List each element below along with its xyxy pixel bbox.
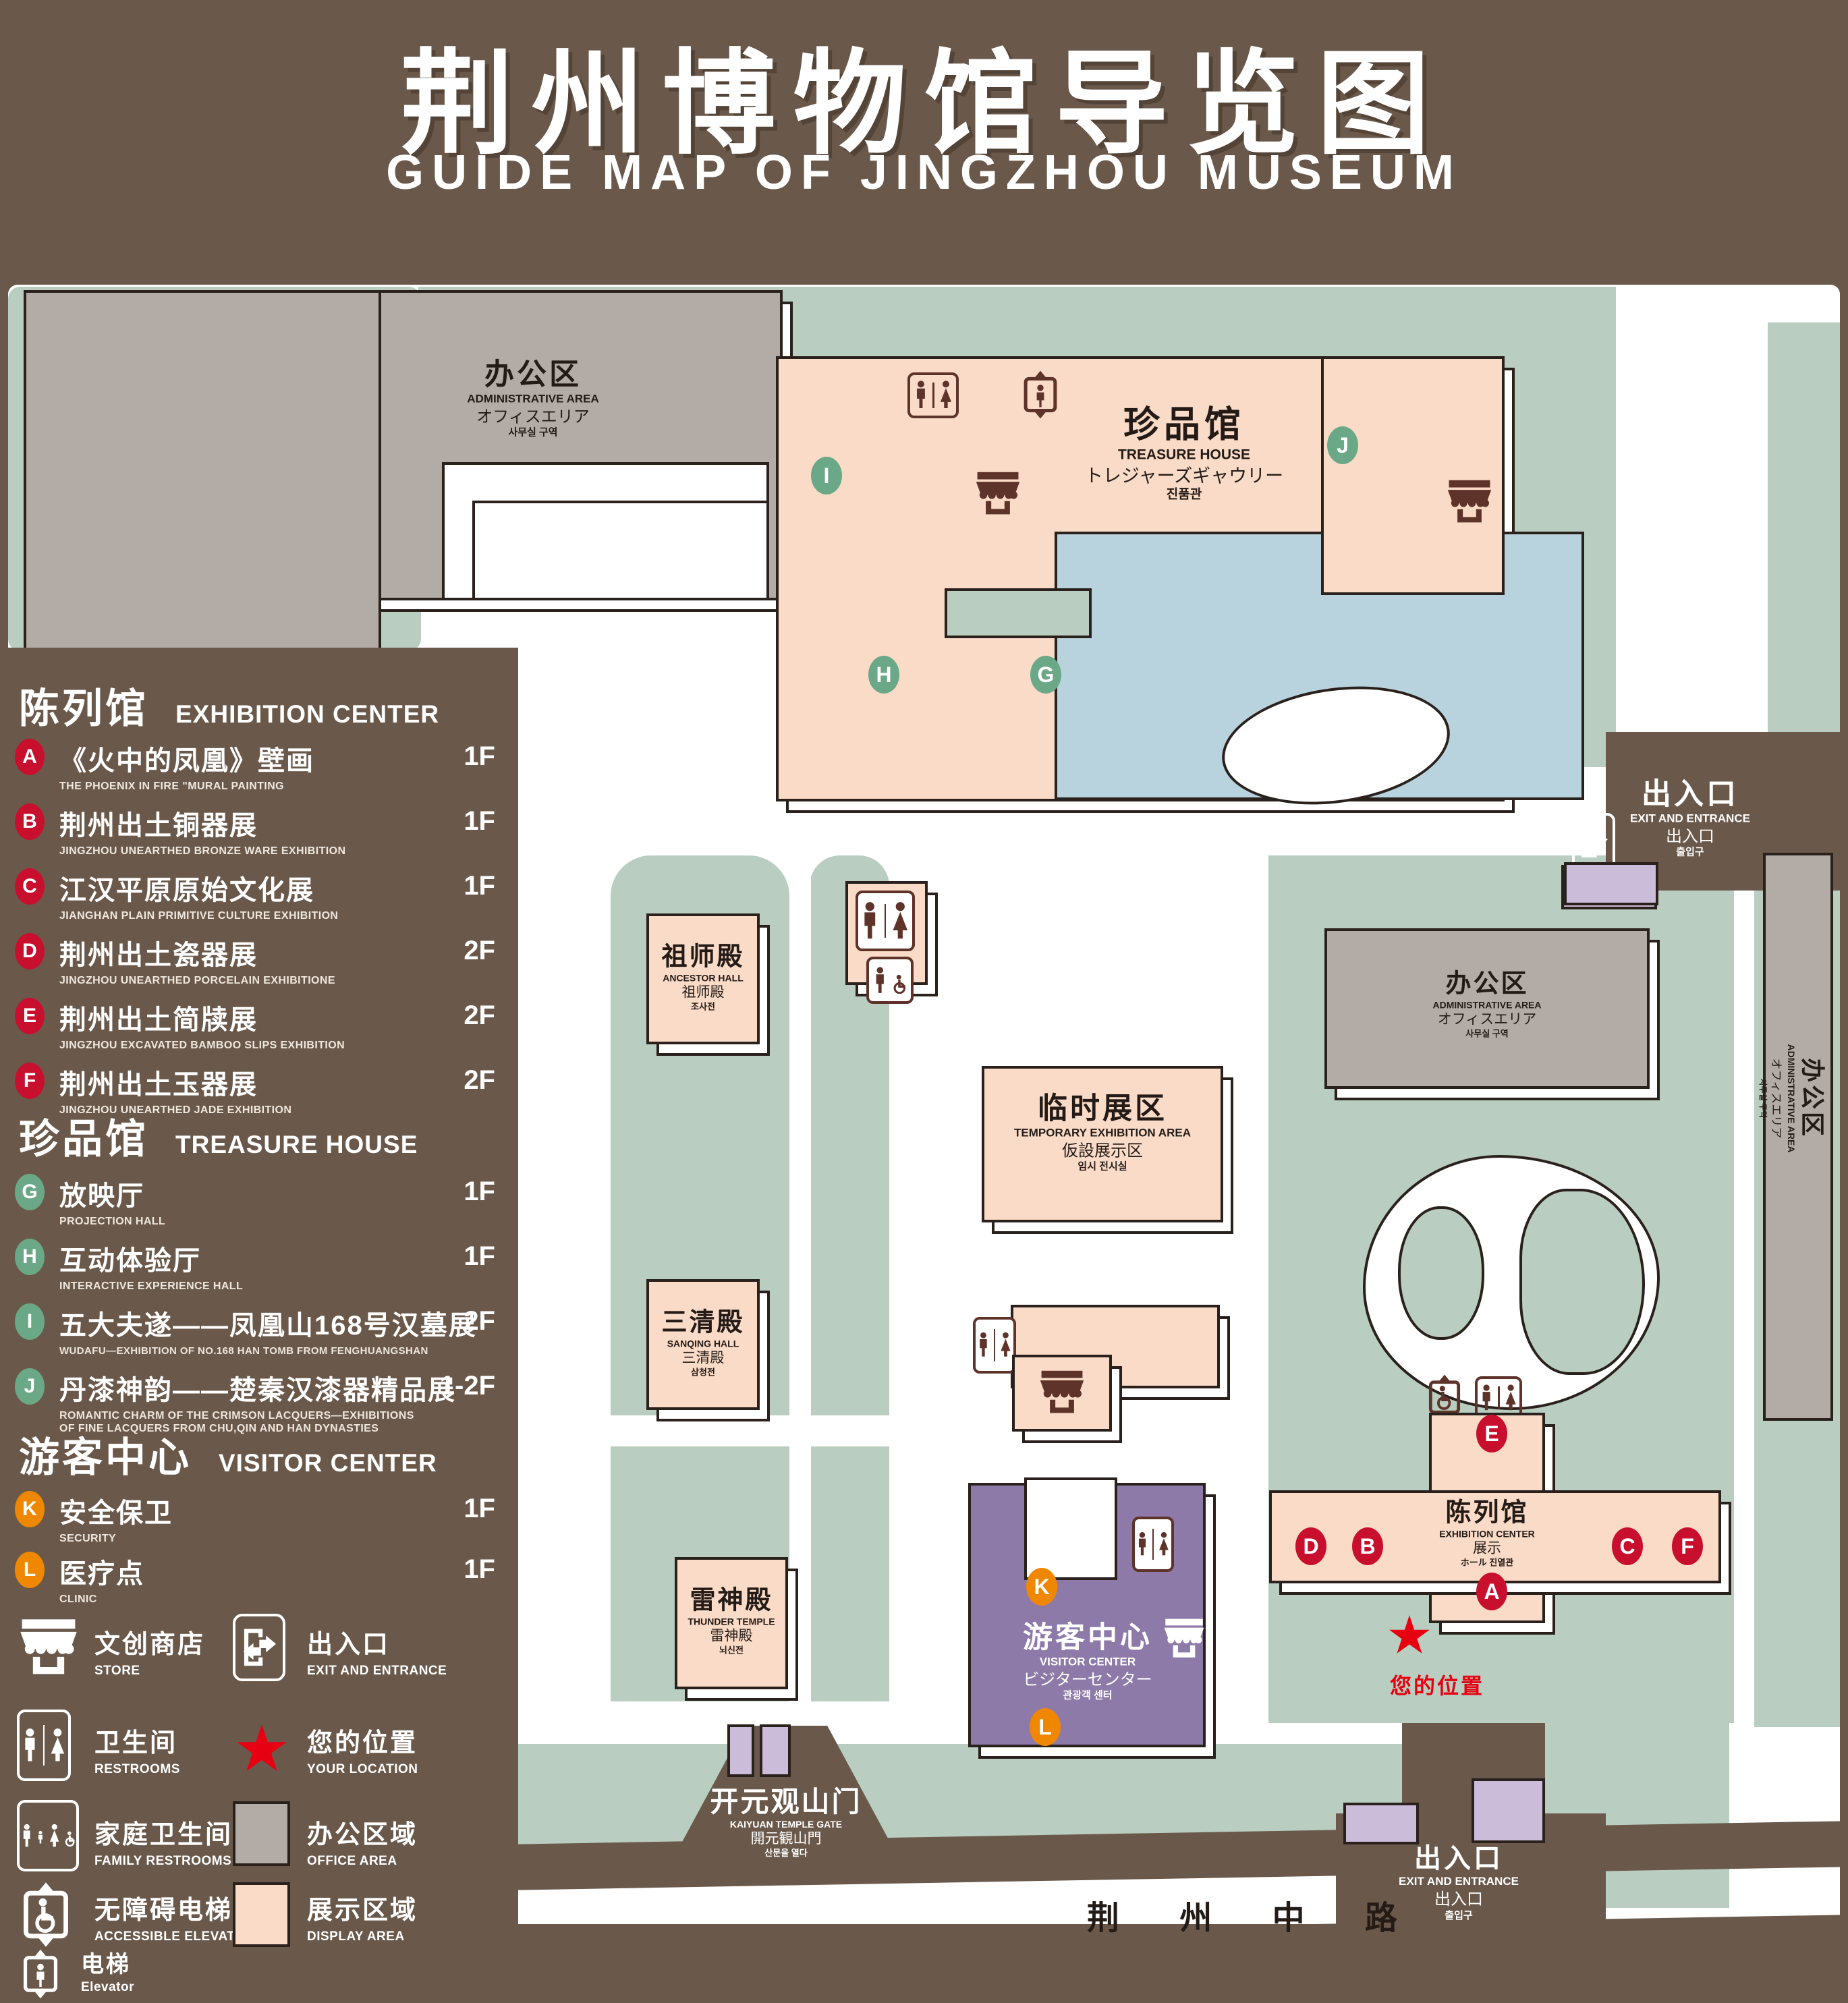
legend-item-a: A 1F 《火中的凤凰》壁画 THE PHOENIX IN FIRE "MURA… xyxy=(15,739,495,793)
legend-symbol-location: 您的位置 YOUR LOCATION xyxy=(307,1722,418,1777)
label-zh: 《火中的凤凰》壁画 xyxy=(59,739,495,778)
legend-item-b: B 1F 荆州出土铜器展 JINGZHOU UNEARTHED BRONZE W… xyxy=(15,803,495,857)
building-admin-northwest-wing xyxy=(24,290,381,681)
exit-entrance-label-right: 出入口 EXIT AND ENTRANCE 出入口 출입구 xyxy=(1630,777,1750,859)
map-marker-a: A xyxy=(1476,1573,1507,1610)
label-jp: 雷神殿 xyxy=(688,1629,775,1645)
divider xyxy=(43,1725,45,1766)
label-zh: 出入口 xyxy=(307,1623,447,1660)
label-zh: 祖师殿 xyxy=(661,942,744,972)
label-en: EXIT AND ENTRANCE xyxy=(307,1664,447,1678)
floor: 2F xyxy=(464,936,495,966)
store-icon xyxy=(17,1618,80,1677)
label-en: KAIYUAN TEMPLE GATE xyxy=(710,1818,862,1830)
label-zh: 三清殿 xyxy=(661,1307,744,1338)
temporary-exhibition-label: 临时展区 TEMPORARY EXHIBITION AREA 仮設展示区 임시 … xyxy=(1014,1092,1191,1173)
label-en: FAMILY RESTROOMS xyxy=(94,1854,233,1869)
legend-item-d: D 2F 荆州出土瓷器展 JINGZHOU UNEARTHED PORCELAI… xyxy=(15,933,495,987)
office-area-swatch xyxy=(233,1801,290,1866)
label-jp: オフィスエリア xyxy=(467,407,599,426)
pond-green-terrace xyxy=(945,588,1092,638)
label-zh: 荆州出土玉器展 xyxy=(59,1063,495,1102)
store-icon xyxy=(1162,1618,1206,1660)
legend-section-treasure-house: 珍品馆 TREASURE HOUSE xyxy=(19,1106,418,1165)
label-kr: 뇌신전 xyxy=(688,1645,775,1655)
label-zh: 家庭卫生间 xyxy=(94,1813,233,1851)
label-en: EXIT AND ENTRANCE xyxy=(1630,812,1750,825)
label-en: CLINIC xyxy=(59,1593,495,1606)
elevator-icon xyxy=(1020,370,1061,420)
label-jp: トレジャーズギャウリー xyxy=(1085,466,1283,488)
path-between-columns xyxy=(789,855,811,1701)
label-en: THE PHOENIX IN FIRE "MURAL PAINTING xyxy=(59,781,495,793)
label-en: STORE xyxy=(94,1664,205,1678)
exhibition-center-label: 陈列馆 EXHIBITION CENTER 展示 ホール 진열관 xyxy=(1439,1498,1535,1567)
label-zh: 游客中心 xyxy=(1023,1620,1152,1656)
label-en: JIANGHAN PLAIN PRIMITIVE CULTURE EXHIBIT… xyxy=(59,910,495,922)
thunder-temple-label: 雷神殿 THUNDER TEMPLE 雷神殿 뇌신전 xyxy=(688,1585,775,1655)
path-cross-columns xyxy=(611,1415,894,1446)
label-zh: 您的位置 xyxy=(307,1722,418,1759)
label-zh: 珍品馆 xyxy=(1085,404,1283,447)
label-jp: オフィスエリア xyxy=(1769,920,1786,1277)
label-jp: オフィスエリア xyxy=(1433,1012,1542,1029)
floor: 2F xyxy=(464,1000,495,1031)
visitor-center-label: 游客中心 VISITOR CENTER ビジターセンター 관광객 센터 xyxy=(1023,1620,1152,1702)
map-marker-h: H xyxy=(868,656,899,694)
label-kr: 진품관 xyxy=(1085,488,1283,503)
label-zh: 办公区 xyxy=(1797,920,1832,1277)
legend-symbol-accessible-elevator: 无障碍电梯 ACCESSIBLE ELEVATOR xyxy=(94,1889,255,1944)
label-en: SANQING HALL xyxy=(661,1338,744,1349)
treasure-house-label: 珍品馆 TREASURE HOUSE トレジャーズギャウリー 진품관 xyxy=(1085,404,1283,503)
section-title-en: EXHIBITION CENTER xyxy=(175,700,439,729)
admin-middle-label: 办公区 ADMINISTRATIVE AREA オフィスエリア 사무실 구역 xyxy=(1433,969,1542,1038)
label-en: VISITOR CENTER xyxy=(1023,1655,1152,1668)
restrooms-icon xyxy=(907,372,959,418)
admin-courtyard-inner xyxy=(472,501,769,600)
legend-symbol-restrooms: 卫生间 RESTROOMS xyxy=(94,1722,180,1777)
label-en: TEMPORARY EXHIBITION AREA xyxy=(1014,1126,1191,1139)
display-area-swatch xyxy=(233,1882,290,1947)
label-en: ADMINISTRATIVE AREA xyxy=(467,392,599,405)
divider xyxy=(1498,1386,1500,1410)
label-en: JINGZHOU UNEARTHED PORCELAIN EXHIBITIONE xyxy=(59,975,495,987)
section-title-zh: 陈列馆 xyxy=(19,676,148,735)
garden-islet-west xyxy=(1398,1206,1484,1340)
label-kr: 임시 전시실 xyxy=(1014,1161,1191,1173)
label-jp: 祖师殿 xyxy=(661,985,744,1002)
label-zh: 陈列馆 xyxy=(1439,1498,1535,1528)
floor: 1F xyxy=(464,806,495,837)
label-en: ACCESSIBLE ELEVATOR xyxy=(94,1929,255,1944)
label-en: JINGZHOU UNEARTHED BRONZE WARE EXHIBITIO… xyxy=(59,845,495,857)
label-en: INTERACTIVE EXPERIENCE HALL xyxy=(59,1280,495,1293)
elevator-icon xyxy=(19,1948,62,2000)
legend-item-c: C 1F 江汉平原原始文化展 JIANGHAN PLAIN PRIMITIVE … xyxy=(15,868,495,922)
section-title-en: TREASURE HOUSE xyxy=(175,1131,418,1159)
label-en: ROMANTIC CHARM OF THE CRIMSON LACQUERS—E… xyxy=(59,1410,495,1422)
floor: 1F xyxy=(464,1494,495,1524)
label-zh: 江汉平原原始文化展 xyxy=(59,868,495,907)
map-marker-c: C xyxy=(1612,1527,1643,1565)
label-en: EXIT AND ENTRANCE xyxy=(1399,1875,1519,1888)
label-en: SECURITY xyxy=(59,1533,495,1545)
label-kr: 관광객 센터 xyxy=(1023,1690,1152,1702)
label-zh: 办公区域 xyxy=(307,1813,418,1851)
restrooms-icon xyxy=(973,1317,1016,1374)
page-subtitle: GUIDE MAP OF JINGZHOU MUSEUM xyxy=(0,145,1848,200)
label-jp: 展示 xyxy=(1439,1541,1535,1558)
store-icon xyxy=(1038,1370,1086,1415)
label-zh: 出入口 xyxy=(1399,1843,1519,1875)
badge-c: C xyxy=(15,868,45,905)
legend-symbol-elevator: 电梯 Elevator xyxy=(81,1946,134,1995)
badge-l: L xyxy=(15,1552,45,1588)
label-kr: 출입구 xyxy=(1630,847,1750,859)
badge-i: I xyxy=(15,1303,45,1340)
label-kr: 삼청전 xyxy=(661,1367,744,1377)
legend-item-g: G 1F 放映厅 PROJECTION HALL xyxy=(15,1174,495,1228)
exit-entrance-icon xyxy=(233,1614,285,1681)
label-en: ANCESTOR HALL xyxy=(661,972,744,984)
label-zh: 办公区 xyxy=(467,358,599,393)
label-zh: 电梯 xyxy=(81,1946,134,1979)
badge-k: K xyxy=(15,1491,45,1527)
label-en: TREASURE HOUSE xyxy=(1085,447,1283,463)
label-zh: 五大夫遂——凤凰山168号汉墓展 xyxy=(59,1303,495,1343)
label-jp: ビジターセンター xyxy=(1023,1670,1152,1689)
divider xyxy=(1152,1529,1154,1560)
map-marker-g: G xyxy=(1030,656,1061,694)
label-jp: 仮設展示区 xyxy=(1014,1141,1191,1160)
floor: 2F xyxy=(464,1306,495,1336)
map-marker-l: L xyxy=(1030,1708,1061,1746)
label-en: YOUR LOCATION xyxy=(307,1762,418,1777)
legend-symbol-office-area: 办公区域 OFFICE AREA xyxy=(307,1813,418,1869)
label-kr: 사무실 구역 xyxy=(1433,1028,1542,1038)
floor: 1F xyxy=(464,741,495,772)
label-zh: 开元观山门 xyxy=(710,1785,862,1819)
gatehouse-bottom-west xyxy=(1343,1803,1419,1844)
legend-item-e: E 2F 荆州出土简牍展 JINGZHOU EXCAVATED BAMBOO S… xyxy=(15,998,495,1052)
road-label: 荆 州 中 路 xyxy=(1087,1891,1423,1938)
label-kr: 조사전 xyxy=(661,1001,744,1011)
family-restroom-icon xyxy=(17,1800,79,1871)
gate-pillar-east xyxy=(760,1724,791,1777)
floor: 1F xyxy=(464,1241,495,1272)
green-area-top-right xyxy=(1768,322,1840,761)
label-kr: 사무실 구역 xyxy=(467,427,599,439)
label-en: ADMINISTRATIVE AREA xyxy=(1433,999,1542,1011)
your-location-star: ★ xyxy=(1386,1605,1433,1666)
badge-e: E xyxy=(15,998,45,1034)
your-location-label: 您的位置 xyxy=(1390,1669,1484,1700)
map-marker-e: E xyxy=(1476,1415,1507,1452)
label-zh: 丹漆神韵——楚秦汉漆器精品展 xyxy=(59,1368,495,1407)
badge-d: D xyxy=(15,933,45,969)
family-restroom-icon xyxy=(866,957,914,1004)
sanqing-hall-label: 三清殿 SANQING HALL 三清殿 삼청전 xyxy=(661,1307,744,1377)
map-marker-i: I xyxy=(811,457,842,495)
label-zh: 荆州出土铜器展 xyxy=(59,803,495,843)
kaiyuan-gate-label: 开元观山门 KAIYUAN TEMPLE GATE 開元観山門 산문을 열다 xyxy=(710,1785,862,1858)
visitor-center-notch xyxy=(1024,1477,1117,1580)
label-kr: 산문을 열다 xyxy=(710,1848,862,1858)
label-jp: 開元観山門 xyxy=(710,1831,862,1848)
section-title-en: VISITOR CENTER xyxy=(219,1449,437,1477)
gatehouse-bottom-east xyxy=(1472,1778,1545,1843)
label-jp2: ホール 진열관 xyxy=(1439,1557,1535,1567)
legend-item-h: H 1F 互动体验厅 INTERACTIVE EXPERIENCE HALL xyxy=(15,1239,495,1293)
label-en: WUDAFU—EXHIBITION OF NO.168 HAN TOMB FRO… xyxy=(59,1345,495,1357)
label-zh: 文创商店 xyxy=(94,1623,205,1660)
label-zh: 展示区域 xyxy=(307,1889,418,1926)
map-marker-d: D xyxy=(1295,1527,1326,1565)
label-zh2: 出入口 xyxy=(1630,827,1750,846)
badge-b: B xyxy=(15,803,45,840)
floor: 1F xyxy=(464,1554,495,1585)
label-en: ADMINISTRATIVE AREA xyxy=(1786,920,1797,1277)
floor: 1F xyxy=(464,1177,495,1207)
label-en: JINGZHOU EXCAVATED BAMBOO SLIPS EXHIBITI… xyxy=(59,1040,495,1052)
building-treasure-house-east-wing xyxy=(1321,356,1505,595)
map-marker-b: B xyxy=(1352,1527,1383,1565)
label-en: EXHIBITION CENTER xyxy=(1439,1528,1535,1540)
legend-section-exhibition-center: 陈列馆 EXHIBITION CENTER xyxy=(19,676,439,735)
garden-islet-east xyxy=(1519,1189,1645,1375)
legend-symbol-family-restrooms: 家庭卫生间 FAMILY RESTROOMS xyxy=(94,1813,233,1869)
store-icon xyxy=(1445,479,1494,525)
floor: 1-2F xyxy=(440,1371,495,1401)
label-zh: 卫生间 xyxy=(94,1722,180,1759)
map-marker-k: K xyxy=(1026,1568,1057,1606)
floor: 2F xyxy=(464,1065,495,1096)
label-en: THUNDER TEMPLE xyxy=(688,1616,775,1627)
admin-strip-label: 办公区 ADMINISTRATIVE AREA オフィスエリア 사무실 구역 xyxy=(1764,920,1832,1277)
label-en: Elevator xyxy=(81,1980,134,1995)
badge-a: A xyxy=(15,739,45,775)
label-en: OFFICE AREA xyxy=(307,1854,418,1869)
restrooms-icon xyxy=(17,1710,71,1781)
section-title-zh: 游客中心 xyxy=(19,1425,192,1484)
divider xyxy=(932,383,934,407)
admin-northwest-label: 办公区 ADMINISTRATIVE AREA オフィスエリア 사무실 구역 xyxy=(467,358,599,439)
badge-j: J xyxy=(15,1368,45,1405)
label-zh: 医疗点 xyxy=(59,1552,495,1591)
restrooms-icon xyxy=(1132,1517,1174,1572)
map-marker-j: J xyxy=(1327,426,1358,464)
gate-pillar-west xyxy=(727,1724,754,1777)
section-title-zh: 珍品馆 xyxy=(19,1106,148,1165)
gatehouse-mid xyxy=(1564,862,1658,905)
divider xyxy=(994,1329,995,1361)
legend-section-visitor-center: 游客中心 VISITOR CENTER xyxy=(19,1425,437,1484)
legend-item-i: I 2F 五大夫遂——凤凰山168号汉墓展 WUDAFU—EXHIBITION … xyxy=(15,1303,495,1357)
legend-item-l: L 1F 医疗点 CLINIC xyxy=(15,1552,495,1606)
label-zh: 无障碍电梯 xyxy=(94,1889,255,1926)
label-en: DISPLAY AREA xyxy=(307,1929,418,1944)
label-zh: 出入口 xyxy=(1630,777,1750,812)
badge-g: G xyxy=(15,1174,45,1210)
label-zh: 临时展区 xyxy=(1014,1092,1191,1127)
label-zh: 互动体验厅 xyxy=(59,1239,495,1278)
your-location-star-icon: ★ xyxy=(233,1711,291,1786)
label-zh: 雷神殿 xyxy=(688,1585,775,1616)
legend-item-k: K 1F 安全保卫 SECURITY xyxy=(15,1491,495,1545)
label-kr: 사무실 구역 xyxy=(1758,920,1769,1277)
restrooms-icon xyxy=(856,891,915,951)
legend-symbol-store: 文创商店 STORE xyxy=(94,1623,205,1678)
badge-h: H xyxy=(15,1239,45,1275)
legend-symbol-display-area: 展示区域 DISPLAY AREA xyxy=(307,1889,418,1944)
badge-f: F xyxy=(15,1063,45,1099)
label-en: PROJECTION HALL xyxy=(59,1216,495,1228)
map-marker-f: F xyxy=(1672,1527,1703,1565)
divider xyxy=(885,904,887,938)
label-en: RESTROOMS xyxy=(94,1762,180,1777)
store-icon xyxy=(974,471,1022,517)
label-zh: 办公区 xyxy=(1433,969,1542,999)
ancestor-hall-label: 祖师殿 ANCESTOR HALL 祖师殿 조사전 xyxy=(661,942,744,1011)
label-jp: 三清殿 xyxy=(661,1351,744,1367)
accessible-elevator-icon xyxy=(19,1881,73,1948)
label-zh: 放映厅 xyxy=(59,1174,495,1213)
label-zh: 安全保卫 xyxy=(59,1491,495,1530)
label-zh: 荆州出土简牍展 xyxy=(59,998,495,1037)
legend-symbol-exit: 出入口 EXIT AND ENTRANCE xyxy=(307,1623,447,1678)
floor: 1F xyxy=(464,871,495,901)
label-zh: 荆州出土瓷器展 xyxy=(59,933,495,972)
